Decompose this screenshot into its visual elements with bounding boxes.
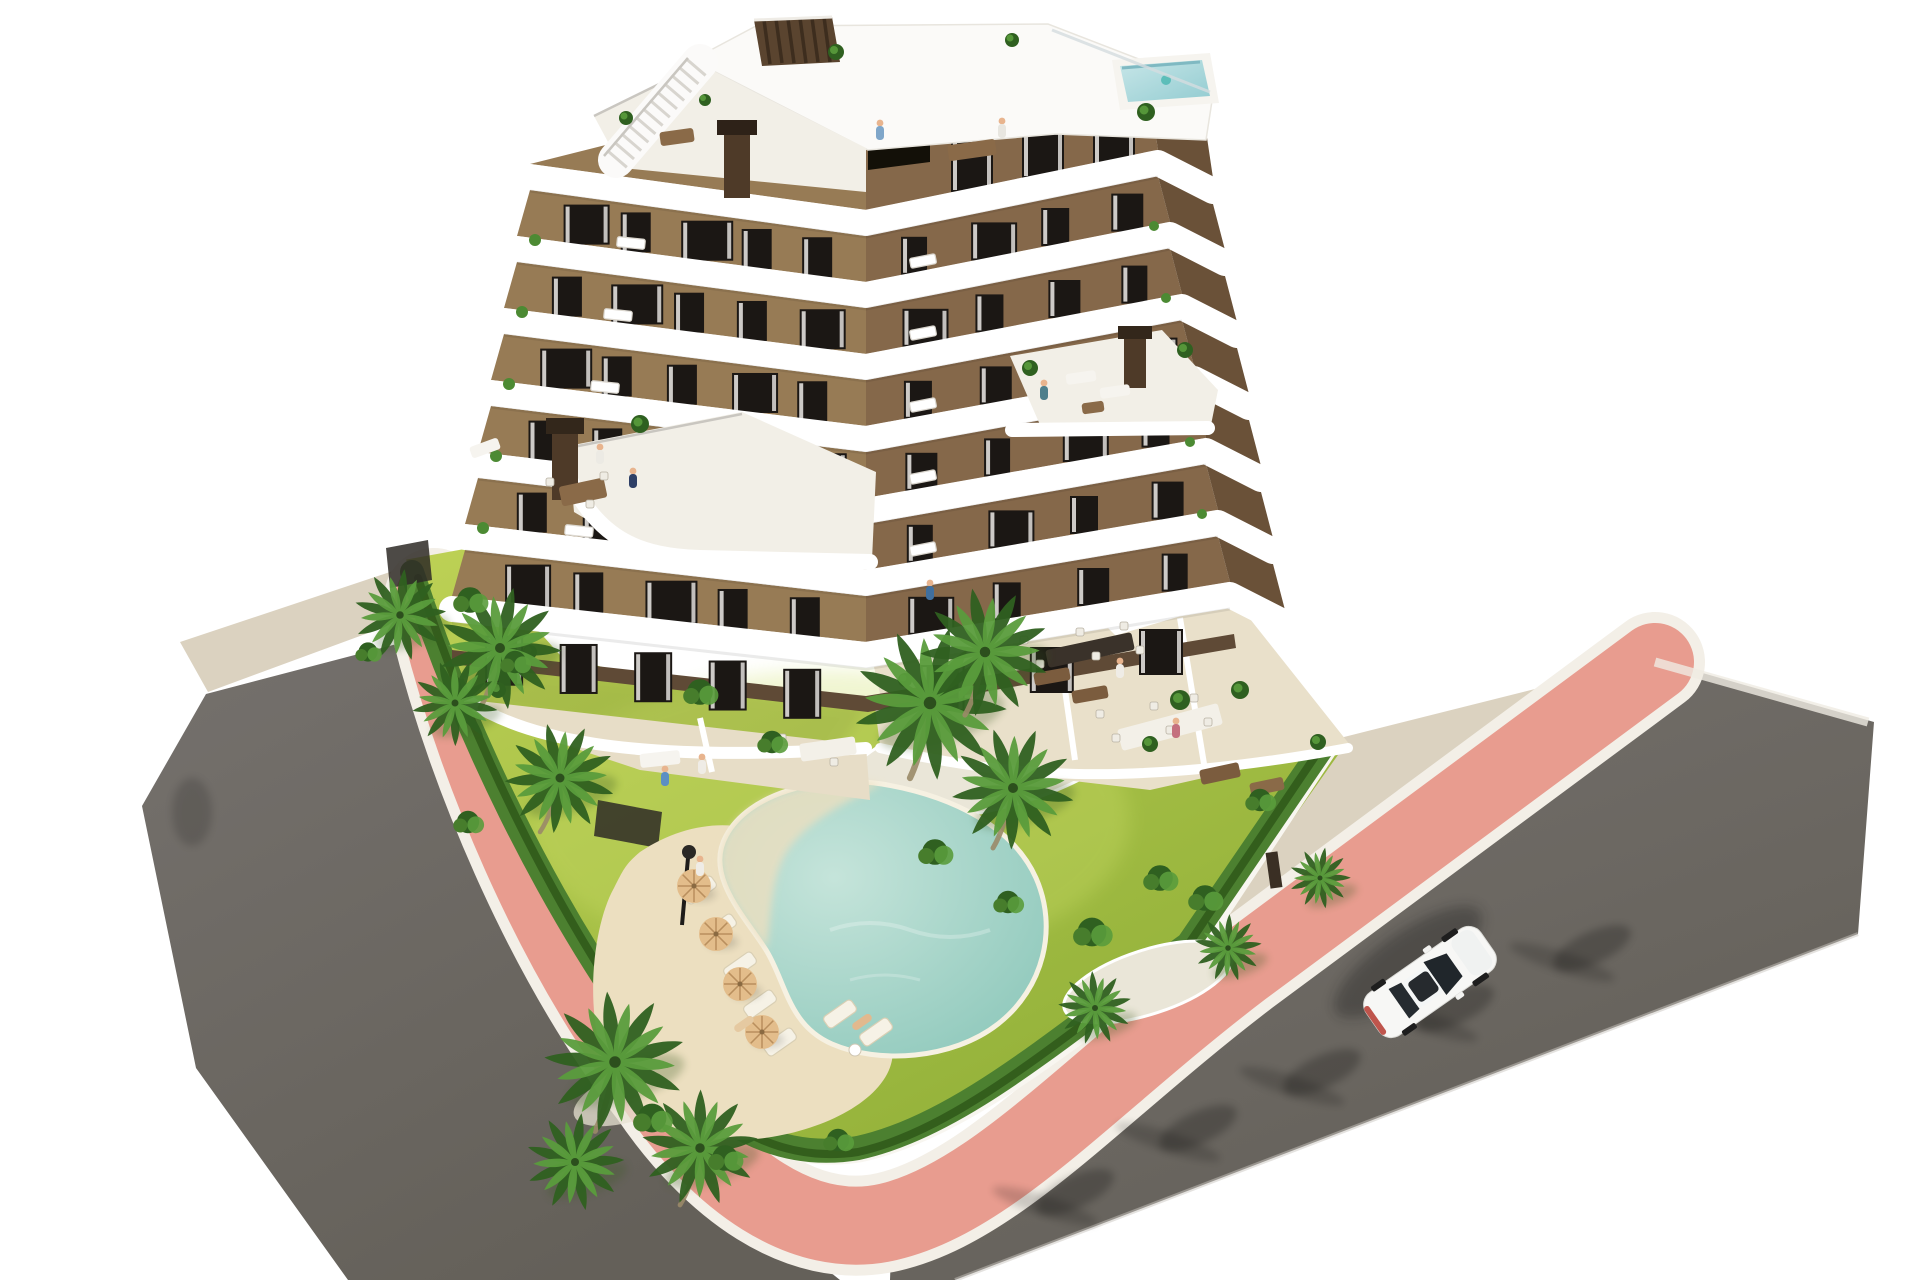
chimney-penthouse: [724, 130, 750, 198]
chimney-right-wing-cap: [1118, 326, 1152, 339]
chimney-penthouse-cap: [717, 120, 757, 135]
architectural-render-scene: [0, 0, 1920, 1280]
lamp-head: [682, 845, 696, 859]
plot-corner-fence: [386, 540, 432, 588]
right-wing-parapet: [1012, 428, 1208, 430]
chimney-right-wing: [1124, 334, 1146, 388]
chimney-left-wing-cap: [546, 418, 584, 434]
render-stage: [0, 0, 1920, 1280]
